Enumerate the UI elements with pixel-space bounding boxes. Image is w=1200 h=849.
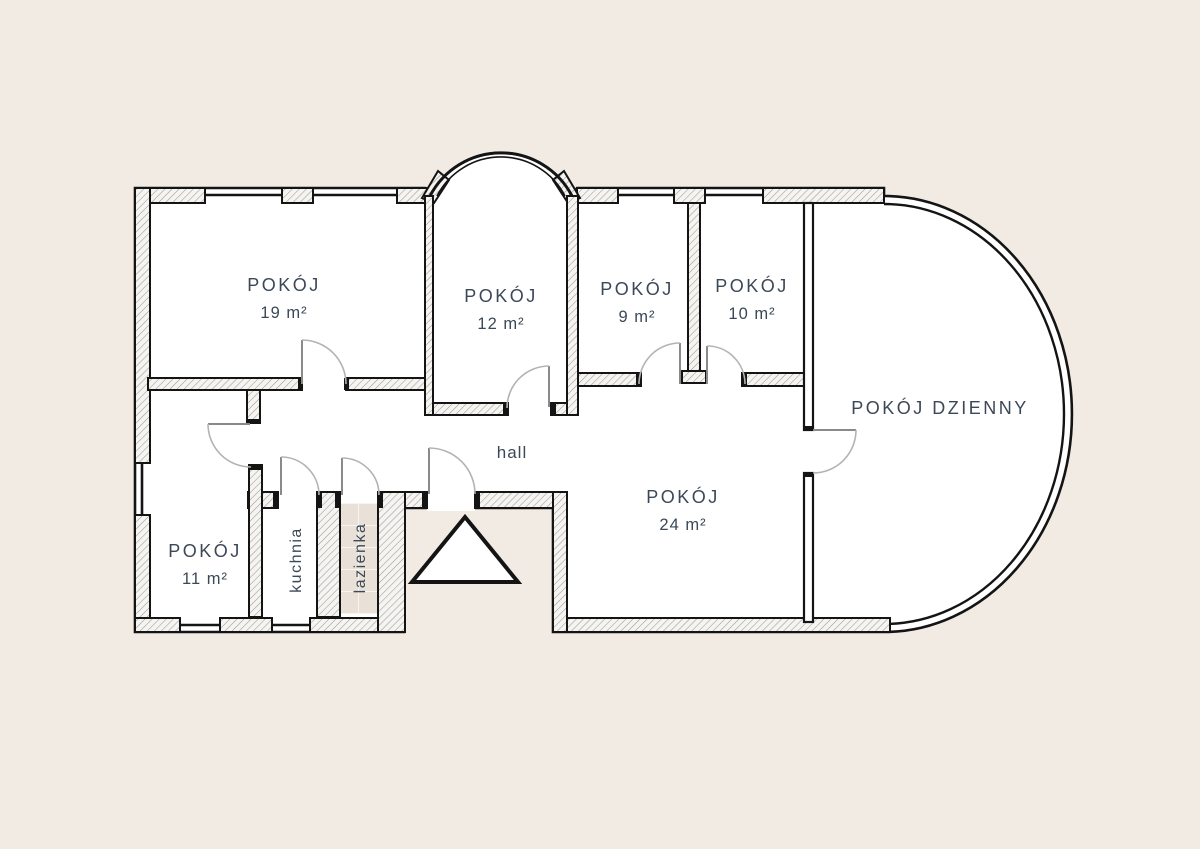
room-area-pokoj12: 12 m² (477, 315, 524, 333)
room-label-pokoj10: POKÓJ (715, 275, 789, 296)
room-label-pokoj24: POKÓJ (646, 486, 720, 507)
room-area-pokoj19: 19 m² (260, 304, 307, 322)
living-room-wall (804, 203, 813, 622)
room-label-pokoj9: POKÓJ (600, 278, 674, 299)
floor-plan-drawing: POKÓJ 19 m² POKÓJ 12 m² POKÓJ 9 m² POKÓJ… (0, 0, 1200, 849)
room-label-pokoj12: POKÓJ (464, 285, 538, 306)
room-area-pokoj9: 9 m² (619, 308, 656, 326)
room-label-pokoj19: POKÓJ (247, 274, 321, 295)
room-label-hall: hall (497, 443, 527, 462)
room-label-pokoj-dzienny: POKÓJ DZIENNY (851, 397, 1029, 418)
room-label-pokoj11: POKÓJ (168, 540, 242, 561)
room-area-pokoj10: 10 m² (728, 305, 775, 323)
room-area-pokoj11: 11 m² (182, 570, 228, 588)
entrance-threshold (427, 500, 475, 511)
room-label-lazienka: lazienka (352, 523, 369, 594)
room-label-kuchnia: kuchnia (288, 527, 305, 593)
floor-plan-page: POKÓJ 19 m² POKÓJ 12 m² POKÓJ 9 m² POKÓJ… (0, 0, 1200, 849)
room-area-pokoj24: 24 m² (659, 516, 706, 534)
flat-outline (135, 153, 1072, 632)
